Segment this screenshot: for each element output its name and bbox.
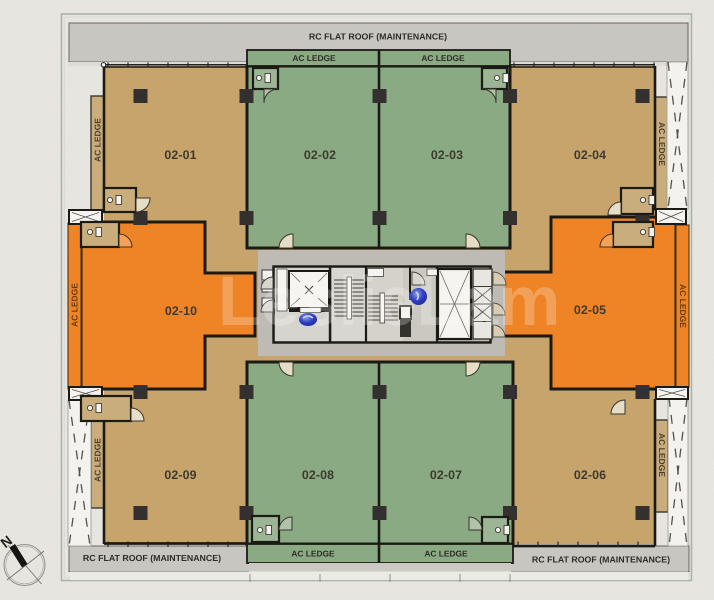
svg-text:02-07: 02-07 [430,468,462,482]
svg-text:02-03: 02-03 [431,148,463,162]
svg-text:AC LEDGE: AC LEDGE [93,438,103,482]
svg-text:02-02: 02-02 [304,148,336,162]
svg-text:AC LEDGE: AC LEDGE [292,53,336,63]
svg-text:02-05: 02-05 [574,303,606,317]
svg-text:AC LEDGE: AC LEDGE [70,283,80,327]
svg-text:02-01: 02-01 [164,148,196,162]
svg-text:02-08: 02-08 [302,468,334,482]
svg-text:AC LEDGE: AC LEDGE [421,53,465,63]
svg-text:AC LEDGE: AC LEDGE [93,118,103,162]
svg-text:02-06: 02-06 [574,468,606,482]
svg-text:AC LEDGE: AC LEDGE [678,284,688,328]
svg-text:02-10: 02-10 [165,304,197,318]
svg-text:AC LEDGE: AC LEDGE [657,433,667,477]
svg-text:RC FLAT ROOF (MAINTENANCE): RC FLAT ROOF (MAINTENANCE) [83,553,221,563]
svg-text:RC FLAT ROOF (MAINTENANCE): RC FLAT ROOF (MAINTENANCE) [532,555,670,565]
svg-text:AC LEDGE: AC LEDGE [657,122,667,166]
svg-text:AC LEDGE: AC LEDGE [424,549,468,559]
svg-text:02-04: 02-04 [574,148,606,162]
svg-text:02-09: 02-09 [164,468,196,482]
svg-text:LeslieLam: LeslieLam [218,262,560,340]
svg-text:RC FLAT ROOF (MAINTENANCE): RC FLAT ROOF (MAINTENANCE) [309,32,447,42]
svg-text:AC LEDGE: AC LEDGE [291,549,335,559]
